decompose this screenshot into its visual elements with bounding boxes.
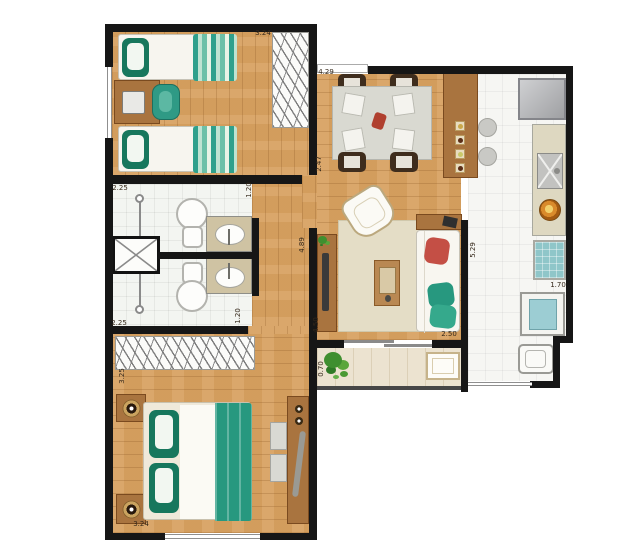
floor-plan: 3.24 2.47 2.25 1.20 1.20 2.25 3.25 3.24 …	[0, 0, 640, 552]
wall	[566, 66, 573, 343]
dim-label: 1.20	[234, 304, 242, 328]
bar-item	[455, 149, 465, 159]
sheet	[180, 405, 216, 519]
bar-item	[455, 135, 465, 145]
dim-label: 4.89	[298, 233, 306, 257]
armchair-seat	[351, 194, 389, 231]
blanket-icon	[193, 126, 237, 173]
pillow-icon	[122, 130, 149, 169]
dining-chair-icon	[390, 152, 418, 172]
wardrobe-icon	[272, 32, 309, 128]
dim-label: 2.50	[437, 330, 461, 338]
shower-box-icon	[112, 236, 160, 274]
sliding-door-leaf	[384, 344, 432, 347]
window-icon	[107, 67, 112, 138]
partition-knob	[135, 305, 144, 314]
single-bed-icon	[118, 126, 236, 172]
wall	[432, 340, 461, 348]
chair-seat	[159, 91, 172, 112]
faucet-icon	[228, 263, 230, 279]
wall	[105, 175, 302, 184]
bar-item	[455, 163, 465, 173]
bedroom-2-door-patch	[248, 326, 309, 334]
wall	[105, 138, 113, 540]
dim-label: 1.70	[546, 281, 570, 289]
cooktop-pan-icon	[539, 199, 561, 221]
dresser-icon	[287, 396, 309, 524]
sink-icon	[537, 153, 563, 189]
dim-label: 2.47	[315, 152, 323, 176]
dim-label: 4.29	[314, 68, 338, 76]
service-opening	[468, 382, 532, 386]
wall	[309, 340, 344, 348]
wall	[461, 220, 468, 392]
wall	[105, 326, 248, 334]
dim-label: 2.25	[107, 319, 131, 327]
washing-machine-icon	[520, 292, 565, 336]
wall-shelf-icon	[270, 454, 287, 482]
toilet-icon	[176, 280, 208, 312]
chair-cushion	[396, 156, 412, 168]
stool-icon	[478, 147, 497, 166]
wall	[105, 24, 113, 67]
dim-label: 1.20	[245, 178, 253, 202]
sink-vanity-icon	[206, 216, 252, 252]
wall	[260, 533, 317, 540]
wall	[158, 252, 259, 259]
sliding-door-icon	[344, 340, 432, 348]
placemat-icon	[341, 92, 365, 116]
blanket-icon	[215, 403, 252, 521]
throw-pillow-icon	[423, 236, 450, 265]
pillow-icon	[149, 410, 179, 458]
plant-icon	[318, 236, 327, 244]
wall	[105, 24, 317, 32]
bar-counter-icon	[443, 70, 478, 178]
decor-icon	[442, 216, 458, 229]
dim-label: 0.70	[317, 357, 325, 381]
blanket-icon	[193, 34, 237, 81]
faucet-icon	[228, 229, 230, 245]
dim-label: 3.25	[118, 364, 126, 388]
tv-sideboard-icon	[317, 234, 337, 332]
hallway-floor-patch	[302, 175, 317, 228]
plant-icon	[324, 352, 342, 368]
bench-icon	[426, 352, 460, 380]
washer-drum	[529, 299, 557, 330]
laundry-tank-icon	[518, 344, 554, 374]
bar-item	[455, 121, 465, 131]
bench-top	[432, 358, 454, 374]
balcony-railing	[309, 386, 468, 390]
wall-shelf-icon	[270, 422, 287, 450]
dining-chair-icon	[338, 152, 366, 172]
decor-icon	[292, 431, 306, 497]
dish-rack-icon	[533, 240, 566, 280]
coffee-table-top	[379, 267, 396, 294]
sink-vanity-icon	[206, 258, 252, 294]
wall	[530, 381, 560, 388]
coffee-table-icon	[374, 260, 400, 306]
wall	[309, 228, 317, 533]
single-bed-icon	[118, 34, 236, 80]
stool-icon	[478, 118, 497, 137]
centerpiece-icon	[371, 112, 387, 131]
double-bed-icon	[143, 402, 251, 520]
lamp-icon	[122, 399, 141, 418]
placemat-icon	[392, 128, 415, 151]
partition-knob	[135, 194, 144, 203]
sofa-icon	[416, 230, 460, 332]
sofa-console-icon	[416, 214, 462, 230]
counter-icon	[532, 124, 566, 236]
wall	[368, 66, 573, 74]
dim-label: 3.24	[251, 29, 275, 37]
placemat-icon	[392, 93, 416, 117]
dim-label: 5.29	[469, 238, 477, 262]
placemat-icon	[341, 127, 365, 151]
dining-table-icon	[332, 86, 432, 160]
wardrobe-icon	[115, 336, 255, 370]
pillow-icon	[149, 463, 179, 513]
nightstand-icon	[116, 394, 146, 422]
dim-label: 3.24	[129, 520, 153, 528]
knob-icon	[295, 405, 303, 413]
sink-bowl	[215, 267, 245, 288]
desk-chair-icon	[152, 84, 180, 120]
refrigerator-icon	[518, 78, 566, 120]
sliding-door-leaf	[344, 340, 394, 343]
lamp-icon	[122, 500, 141, 519]
throw-pillow-icon	[429, 304, 457, 330]
chair-cushion	[344, 156, 360, 168]
dim-label: 2.25	[108, 184, 132, 192]
dim-label: 4.50	[312, 313, 320, 337]
monitor-icon	[122, 91, 145, 114]
tank-bowl	[525, 350, 546, 368]
sink-bowl	[215, 224, 245, 245]
toilet-icon	[182, 226, 203, 248]
knob-icon	[295, 417, 303, 425]
decor-icon	[385, 295, 391, 302]
window-icon	[165, 534, 260, 539]
wall	[105, 533, 165, 540]
pillow-icon	[122, 38, 149, 77]
tv-icon	[322, 253, 329, 311]
